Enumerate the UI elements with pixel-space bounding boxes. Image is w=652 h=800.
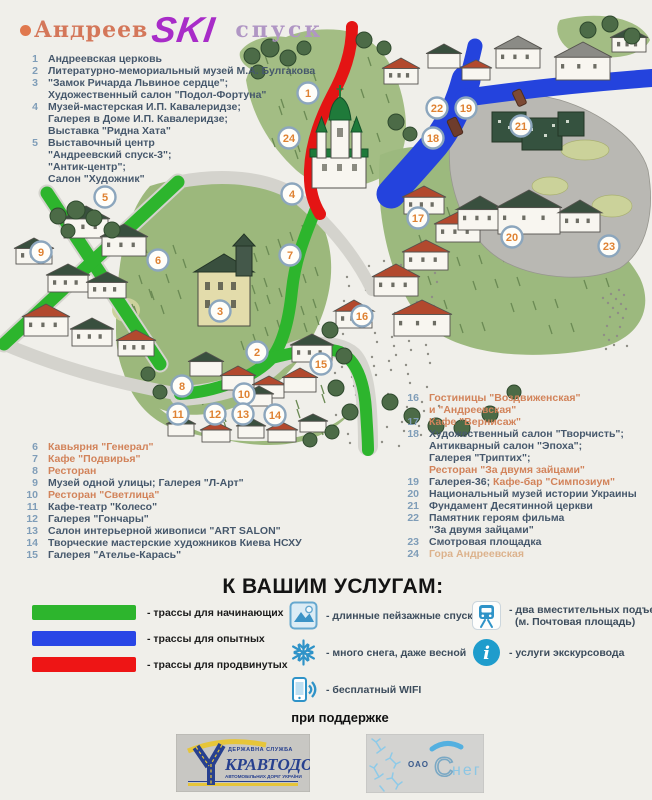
svg-text:11: 11 (172, 409, 184, 421)
feature-row: - много снега, даже весной (289, 638, 479, 667)
tree (356, 32, 372, 48)
map-marker-12: 12 (205, 404, 226, 425)
poi-number: 2 (22, 65, 38, 77)
feature-row: i- услуги экскурсовода (472, 638, 652, 667)
poi-item-6: 6Кавьярня "Генерал" (22, 441, 302, 453)
map-marker-14: 14 (265, 405, 286, 426)
route-legend-label: - трассы для начинающих (147, 607, 284, 619)
poi-number: 5 (22, 137, 38, 185)
poi-line: Ресторан (48, 465, 96, 477)
poi-line: Национальный музей истории Украины (429, 488, 637, 500)
poi-item-12: 12Галерея "Гончары" (22, 513, 302, 525)
poi-number: 19 (403, 476, 419, 488)
svg-text:21: 21 (515, 121, 527, 133)
tree (336, 348, 352, 364)
poi-line: Кафе-театр "Колесо" (48, 501, 157, 513)
tree (67, 201, 85, 219)
poi-line: Антикварный салон "Эпоха"; (429, 440, 624, 452)
poi-number: 16 (403, 392, 419, 416)
tree (322, 322, 338, 338)
route-legend-label: - трассы для продвинутых (147, 659, 288, 671)
route-legend-row-0: - трассы для начинающих (32, 605, 288, 620)
feature-label: - два вместительных подъемника(м. Почтов… (509, 604, 652, 628)
poi-line: Гора Андреевская (429, 548, 524, 560)
tree (388, 114, 404, 130)
tree (50, 208, 66, 224)
poi-item-8: 8Ресторан (22, 465, 302, 477)
tree (624, 28, 640, 44)
poi-item-11: 11Кафе-театр "Колесо" (22, 501, 302, 513)
tree (303, 433, 317, 447)
poi-item-22: 22Памятник героям фильма"За двумя зайцам… (403, 512, 637, 536)
poi-item-3: 3"Замок Ричарда Львиное сердце";Художест… (22, 77, 315, 101)
tree (403, 127, 417, 141)
poi-number: 20 (403, 488, 419, 500)
poi-number: 13 (22, 525, 38, 537)
tree (580, 22, 596, 38)
tree (377, 41, 391, 55)
poi-number: 1 (22, 53, 38, 65)
svg-text:7: 7 (287, 250, 293, 262)
poi-line: Фундамент Десятинной церкви (429, 500, 593, 512)
services-title: К ВАШИМ УСЛУГАМ: (160, 575, 506, 599)
route-experienced-right (464, 78, 652, 98)
poi-line: Памятник героям фильма (429, 512, 564, 524)
poi-number: 22 (403, 512, 419, 536)
svg-text:23: 23 (603, 241, 615, 253)
tree (104, 222, 120, 238)
svg-text:10: 10 (238, 389, 250, 401)
svg-text:5: 5 (102, 192, 108, 204)
sneg-letters-rest: нег (452, 762, 482, 779)
logo-line3: АВТОМОБІЛЬНИХ ДОРІГ УКРАЇНИ (225, 773, 302, 779)
snowflake-icon (289, 638, 318, 667)
features-column-2: - два вместительных подъемника(м. Почтов… (472, 601, 652, 675)
poi-number: 8 (22, 465, 38, 477)
map-marker-18: 18 (423, 128, 444, 149)
poi-line: и "Андреевская" (429, 404, 580, 416)
poi-number: 21 (403, 500, 419, 512)
map-marker-2: 2 (247, 342, 268, 363)
feature-row: - длинные пейзажные спуски (289, 601, 479, 630)
svg-text:6: 6 (155, 255, 161, 267)
funicular-icon (472, 601, 501, 630)
poi-item-7: 7Кафе "Подвирья" (22, 453, 302, 465)
poi-line: Выставка "Ридна Хата" (48, 125, 241, 137)
route-color-bar (32, 605, 136, 620)
feature-row: - бесплатный WIFI (289, 675, 479, 704)
sponsors-heading: при поддержке (240, 710, 440, 725)
poi-item-9: 9Музей одной улицы; Галерея "Л-Арт" (22, 477, 302, 489)
map-marker-13: 13 (233, 404, 254, 425)
map-marker-16: 16 (352, 306, 373, 327)
map-marker-5: 5 (95, 187, 116, 208)
poi-item-13: 13Салон интерьерной живописи "ART SALON" (22, 525, 302, 537)
route-legend-row-2: - трассы для продвинутых (32, 657, 288, 672)
logo-line1: ДЕРЖАВНА СЛУЖБА (228, 747, 293, 753)
title-word-andreev: Андреев (34, 17, 148, 43)
poi-line: "За двумя зайцами" (429, 524, 564, 536)
poi-line: Гостиницы "Воздвиженская" (429, 392, 580, 404)
svg-text:18: 18 (427, 133, 439, 145)
poi-number: 14 (22, 537, 38, 549)
poi-line: "Андреевский спуск-3"; (48, 149, 171, 161)
map-marker-6: 6 (148, 250, 169, 271)
poi-line: Литературно-мемориальный музей М.А. Булг… (48, 65, 315, 77)
poi-number: 15 (22, 549, 38, 561)
poi-line: Творческие мастерские художников Киева Н… (48, 537, 302, 549)
svg-text:16: 16 (356, 311, 368, 323)
poi-number: 11 (22, 501, 38, 513)
tree (86, 210, 102, 226)
poi-item-4: 4Музей-мастерская И.П. Кавалеридзе;Галер… (22, 101, 315, 137)
svg-text:2: 2 (254, 347, 260, 359)
poi-number: 24 (403, 548, 419, 560)
svg-text:3: 3 (217, 306, 223, 318)
building (426, 44, 462, 68)
poster-title: Андреев SKI спуск (20, 12, 323, 48)
poi-item-24: 24Гора Андреевская (403, 548, 637, 560)
poi-line: Выставочный центр (48, 137, 171, 149)
feature-label: - много снега, даже весной (326, 647, 466, 659)
sneg-prefix: ОАО (408, 760, 429, 769)
map-marker-23: 23 (599, 236, 620, 257)
poi-list-right: 16Гостиницы "Воздвиженская"и "Андреевска… (403, 392, 637, 560)
building (494, 36, 542, 68)
poi-number: 18 (403, 428, 419, 476)
route-color-bar (32, 631, 136, 646)
map-marker-19: 19 (456, 98, 477, 119)
poi-item-20: 20Национальный музей истории Украины (403, 488, 637, 500)
svg-text:9: 9 (38, 247, 44, 259)
tree (325, 425, 339, 439)
building (22, 304, 70, 336)
route-legend-row-1: - трассы для опытных (32, 631, 288, 646)
svg-text:15: 15 (315, 359, 327, 371)
title-word-ski: SKI (150, 12, 218, 48)
poi-number: 12 (22, 513, 38, 525)
poi-number: 3 (22, 77, 38, 101)
poi-number: 7 (22, 453, 38, 465)
poi-item-17: 17Кафе "Вернисаж" (403, 416, 637, 428)
poi-number: 6 (22, 441, 38, 453)
poi-line: Художественный салон "Творчисть"; (429, 428, 624, 440)
poi-line: Салон "Художник" (48, 173, 171, 185)
poi-line: Ресторан "Светлица" (48, 489, 159, 501)
svg-text:8: 8 (179, 381, 185, 393)
poi-number: 10 (22, 489, 38, 501)
andreevski-spusk-poster: 123456789101112131415161718192021222324 … (0, 0, 652, 800)
map-marker-10: 10 (234, 384, 255, 405)
feature-label: - услуги экскурсовода (509, 647, 624, 659)
poi-line: Салон интерьерной живописи "ART SALON" (48, 525, 281, 537)
poi-item-2: 2Литературно-мемориальный музей М.А. Бул… (22, 65, 315, 77)
svg-text:17: 17 (412, 213, 424, 225)
map-marker-11: 11 (168, 404, 189, 425)
poi-item-15: 15Галерея "Ателье-Карась" (22, 549, 302, 561)
poi-item-18: 18Художественный салон "Творчисть";Антик… (403, 428, 637, 476)
svg-text:13: 13 (237, 409, 249, 421)
route-legend: - трассы для начинающих- трассы для опыт… (32, 605, 288, 683)
map-marker-17: 17 (408, 208, 429, 229)
svg-text:22: 22 (431, 103, 443, 115)
poi-list-bottom-left: 6Кавьярня "Генерал"7Кафе "Подвирья"8Рест… (22, 441, 302, 561)
features-column-1: - длинные пейзажные спуски- много снега,… (289, 601, 479, 712)
poi-line: Галерея в Доме И.П. Кавалеридзе; (48, 113, 241, 125)
building (70, 318, 114, 346)
poi-item-1: 1Андреевская церковь (22, 53, 315, 65)
tree (61, 224, 75, 238)
tree (141, 367, 155, 381)
tree (328, 380, 344, 396)
svg-text:20: 20 (506, 232, 518, 244)
poi-line: Кафе "Подвирья" (48, 453, 141, 465)
poi-item-14: 14Творческие мастерские художников Киева… (22, 537, 302, 549)
tree (602, 16, 618, 32)
poi-line: Андреевская церковь (48, 53, 162, 65)
sneg-logo: ОАО С нег (366, 734, 484, 793)
building (298, 414, 328, 432)
svg-text:i: i (483, 643, 490, 664)
poi-line: Смотровая площадка (429, 536, 541, 548)
phone-wifi-icon (289, 675, 318, 704)
poi-item-19: 19Галерея-36; Кафе-бар "Симпозиум" (403, 476, 637, 488)
poi-line: Ресторан "За двумя зайцами" (429, 464, 624, 476)
poi-number: 17 (403, 416, 419, 428)
poi-item-16: 16Гостиницы "Воздвиженская"и "Андреевска… (403, 392, 637, 416)
poi-line: Кафе "Вернисаж" (429, 416, 521, 428)
map-marker-9: 9 (31, 242, 52, 263)
tree (342, 404, 358, 420)
poi-item-23: 23Смотровая площадка (403, 536, 637, 548)
poi-line: "Антик-центр"; (48, 161, 171, 173)
poi-line: Галерея "Гончары" (48, 513, 149, 525)
svg-text:12: 12 (209, 409, 221, 421)
feature-row: - два вместительных подъемника(м. Почтов… (472, 601, 652, 630)
title-bullet-icon (20, 25, 31, 36)
poi-line: Галерея "Триптих"; (429, 452, 624, 464)
poi-line: Кавьярня "Генерал" (48, 441, 154, 453)
route-color-bar (32, 657, 136, 672)
poi-line: Галерея "Ателье-Карась" (48, 549, 181, 561)
poi-number: 23 (403, 536, 419, 548)
map-marker-20: 20 (502, 227, 523, 248)
mountain-icon (289, 601, 318, 630)
poi-line: Музей-мастерская И.П. Кавалеридзе; (48, 101, 241, 113)
poi-line: Музей одной улицы; Галерея "Л-Арт" (48, 477, 244, 489)
poi-number: 4 (22, 101, 38, 137)
tree (153, 385, 167, 399)
ukravtodor-logo: ДЕРЖАВНА СЛУЖБА КРАВТОДОР АВТОМОБІЛЬНИХ … (176, 734, 310, 792)
map-marker-21: 21 (511, 116, 532, 137)
poi-number: 9 (22, 477, 38, 489)
logo-name: КРАВТОДОР (224, 755, 310, 774)
info-icon: i (472, 638, 501, 667)
poi-line: "Замок Ричарда Львиное сердце"; (48, 77, 266, 89)
poi-item-5: 5Выставочный центр"Андреевский спуск-3";… (22, 137, 315, 185)
poi-line: Галерея-36; Кафе-бар "Симпозиум" (429, 476, 615, 488)
sneg-letter-c: С (434, 752, 454, 782)
poi-line: Художественный салон "Подол-Фортуна" (48, 89, 266, 101)
feature-label: - бесплатный WIFI (326, 684, 421, 696)
feature-label: - длинные пейзажные спуски (326, 610, 479, 622)
route-legend-label: - трассы для опытных (147, 633, 265, 645)
svg-text:19: 19 (460, 103, 472, 115)
svg-text:4: 4 (289, 189, 296, 201)
map-marker-4: 4 (282, 184, 303, 205)
map-marker-8: 8 (172, 376, 193, 397)
tree (382, 394, 398, 410)
poi-item-10: 10Ресторан "Светлица" (22, 489, 302, 501)
map-marker-7: 7 (280, 245, 301, 266)
map-marker-15: 15 (311, 354, 332, 375)
map-marker-22: 22 (427, 98, 448, 119)
poi-list-top-left: 1Андреевская церковь2Литературно-мемориа… (22, 53, 315, 185)
map-marker-3: 3 (210, 301, 231, 322)
title-word-spusk: спуск (235, 17, 323, 43)
svg-text:14: 14 (269, 410, 282, 422)
poi-item-21: 21Фундамент Десятинной церкви (403, 500, 637, 512)
